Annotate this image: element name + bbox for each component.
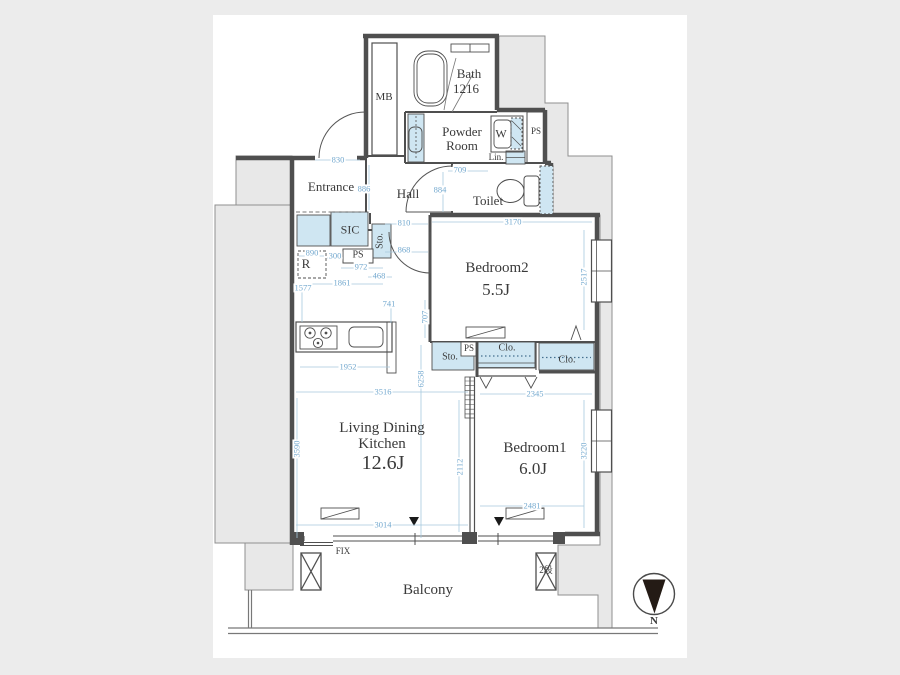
sic-label: SIC bbox=[341, 224, 360, 237]
floorplan-page bbox=[213, 15, 687, 658]
balcony-label: Balcony bbox=[403, 582, 453, 598]
closet1-label: Clo. bbox=[499, 344, 516, 355]
closet2-label: Clo. bbox=[559, 356, 576, 367]
fridge-label: R bbox=[302, 257, 311, 271]
dim-ldk-bottom: 3014 bbox=[374, 520, 393, 529]
dim-bedroom2-width: 3170 bbox=[504, 217, 523, 226]
bedroom2-size: 5.5J bbox=[482, 281, 510, 299]
dim-ldk-length: 6258 bbox=[416, 370, 425, 389]
dim-kitchen-left: 1577 bbox=[294, 283, 313, 292]
dim-ldk-width: 3516 bbox=[374, 387, 393, 396]
bedroom2-name: Bedroom2 bbox=[465, 260, 528, 276]
dim-entrance-depth: 886 bbox=[357, 184, 372, 193]
dim-counter-length: 1952 bbox=[339, 362, 358, 371]
dim-kitchen-return: 468 bbox=[372, 271, 387, 280]
bedroom1-name: Bedroom1 bbox=[503, 440, 566, 456]
dim-wall-section: 707 bbox=[420, 310, 429, 325]
dim-fridge-width: 890 bbox=[305, 248, 320, 257]
storage-mid-label: Sto. bbox=[442, 353, 458, 364]
powder-room-label: Powder Room bbox=[427, 125, 497, 153]
dim-kitchen-width: 1861 bbox=[333, 278, 352, 287]
ps-upper-label: PS bbox=[531, 127, 541, 137]
entrance-label: Entrance bbox=[308, 180, 354, 194]
fix-label: FIX bbox=[336, 547, 351, 557]
linen-label: Lin. bbox=[489, 153, 504, 163]
dim-hall-passage: 810 bbox=[397, 218, 412, 227]
dim-powder-entry: 709 bbox=[453, 165, 468, 174]
ldk-name: Living Dining Kitchen bbox=[320, 420, 444, 452]
bedroom1-size: 6.0J bbox=[519, 460, 547, 478]
hall-label: Hall bbox=[397, 187, 419, 201]
ps-hall-label: PS bbox=[352, 251, 363, 262]
bath-name: Bath bbox=[457, 67, 482, 81]
dim-partition: 2112 bbox=[455, 458, 464, 477]
dim-ps-width: 300 bbox=[328, 251, 343, 260]
bath-size: 1216 bbox=[453, 82, 479, 96]
floorplan-canvas: MB Bath 1216 Powder Room W PS Lin. Toile… bbox=[0, 0, 900, 675]
dim-counter-depth: 741 bbox=[382, 299, 397, 308]
dim-hall-depth: 884 bbox=[433, 185, 448, 194]
dim-hall-lower: 868 bbox=[397, 245, 412, 254]
dim-bedroom1-depth: 3220 bbox=[579, 442, 588, 461]
ps-mid-label: PS bbox=[464, 344, 474, 354]
dim-bedroom2-depth: 2517 bbox=[579, 268, 588, 287]
washer-label: W bbox=[495, 128, 506, 141]
compass-north-label: N bbox=[650, 616, 658, 628]
toilet-label: Toilet bbox=[473, 194, 503, 208]
dim-bedroom1-bottom: 2481 bbox=[523, 501, 542, 510]
dim-entrance-door: 830 bbox=[331, 155, 346, 164]
balcony-step-label: 2段 bbox=[539, 566, 553, 576]
dim-bedroom1-top: 2345 bbox=[526, 389, 545, 398]
dim-kitchen-pass: 972 bbox=[354, 262, 369, 271]
mb-label: MB bbox=[375, 92, 392, 104]
storage-hall-label: Sto. bbox=[376, 233, 387, 249]
dim-ldk-depth: 3590 bbox=[292, 440, 301, 459]
ldk-size: 12.6J bbox=[362, 453, 405, 475]
